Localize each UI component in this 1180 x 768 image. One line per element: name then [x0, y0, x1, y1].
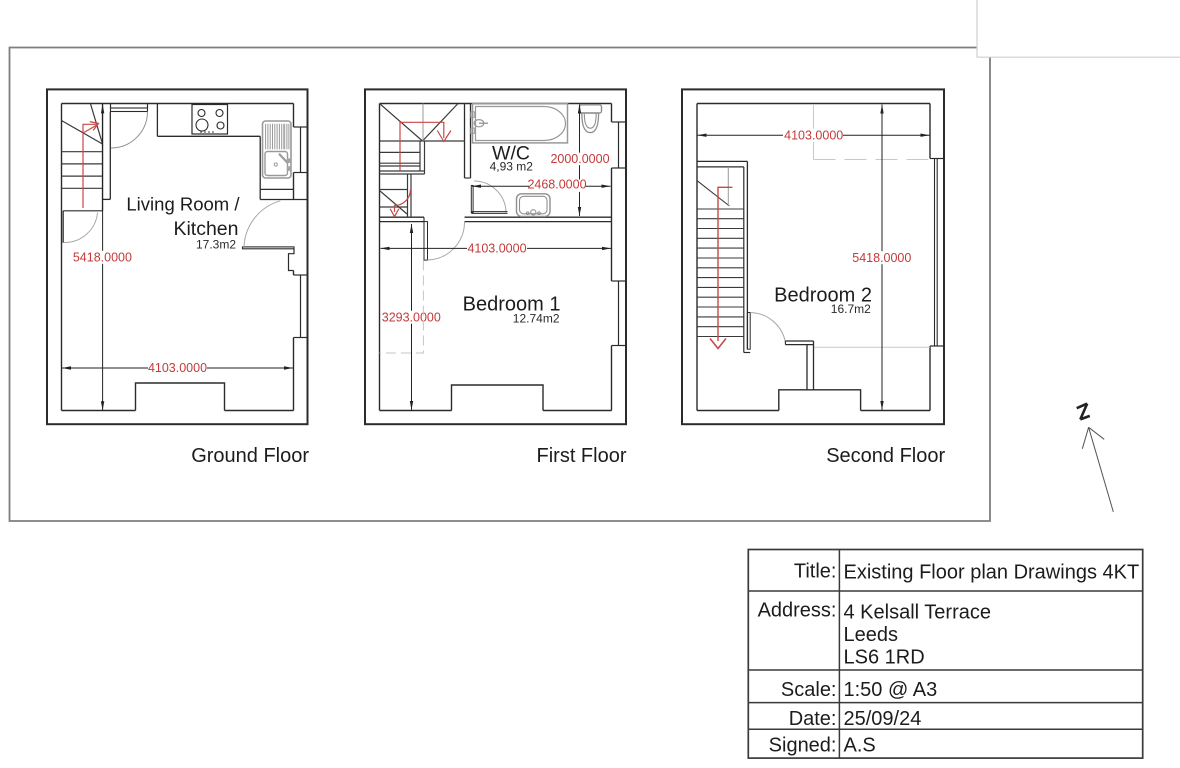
svg-text:Leeds: Leeds — [844, 624, 899, 646]
svg-text:Living Room /: Living Room / — [126, 194, 240, 215]
svg-text:LS6 1RD: LS6 1RD — [844, 647, 925, 669]
svg-text:17.3m2: 17.3m2 — [196, 237, 236, 251]
svg-text:Scale:: Scale: — [781, 679, 837, 701]
svg-text:5418.0000: 5418.0000 — [73, 251, 132, 265]
svg-text:Address:: Address: — [758, 600, 837, 622]
svg-text:3293.0000: 3293.0000 — [382, 311, 441, 325]
svg-text:4,93 m2: 4,93 m2 — [490, 159, 534, 173]
svg-text:Date:: Date: — [789, 708, 837, 730]
svg-text:12.74m2: 12.74m2 — [513, 311, 560, 325]
svg-text:16.7m2: 16.7m2 — [831, 302, 871, 316]
svg-text:1:50 @ A3: 1:50 @ A3 — [844, 679, 938, 701]
svg-text:A.S: A.S — [844, 734, 876, 756]
svg-text:Signed:: Signed: — [769, 734, 837, 756]
svg-text:Ground Floor: Ground Floor — [191, 445, 309, 467]
svg-text:4103.0000: 4103.0000 — [148, 361, 207, 375]
svg-text:2000.0000: 2000.0000 — [550, 152, 609, 166]
svg-text:2468.0000: 2468.0000 — [527, 177, 586, 191]
svg-text:First Floor: First Floor — [537, 445, 627, 467]
svg-text:4103.0000: 4103.0000 — [467, 242, 526, 256]
svg-text:5418.0000: 5418.0000 — [852, 251, 911, 265]
svg-text:4103.0000: 4103.0000 — [784, 128, 843, 142]
svg-text:Second Floor: Second Floor — [826, 445, 945, 467]
svg-text:4 Kelsall Terrace: 4 Kelsall Terrace — [844, 601, 991, 623]
svg-text:25/09/24: 25/09/24 — [844, 708, 922, 730]
svg-text:Existing Floor plan Drawings 4: Existing Floor plan Drawings 4KT — [844, 561, 1140, 583]
svg-text:Title:: Title: — [794, 561, 837, 583]
